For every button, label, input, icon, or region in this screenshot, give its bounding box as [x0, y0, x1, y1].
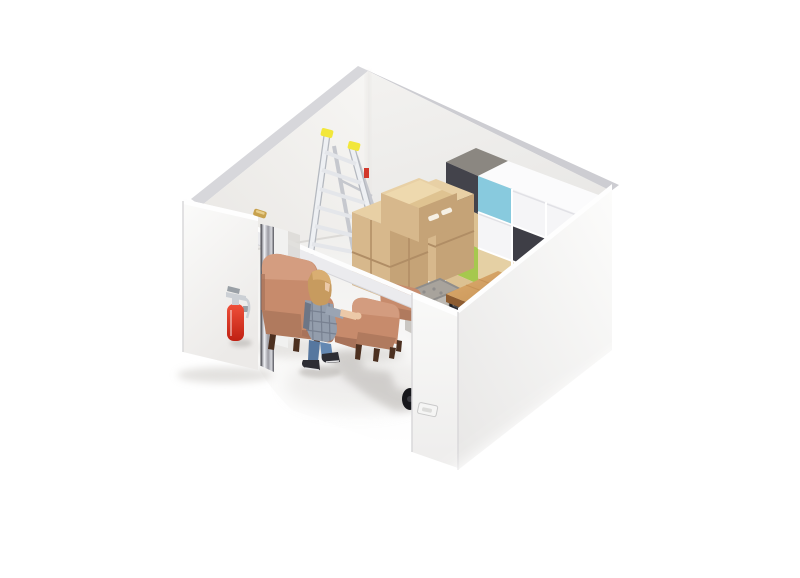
storage-unit-render	[0, 0, 800, 578]
person-left-leg	[308, 340, 320, 362]
wall-bottom-shadow	[177, 367, 273, 383]
ladder-warning-sticker	[364, 168, 369, 178]
extinguisher-body	[227, 304, 244, 341]
person-shoe-sole	[326, 361, 339, 362]
cage-speckle	[432, 287, 435, 290]
render-canvas	[0, 0, 800, 578]
front-right-wall-panel	[412, 293, 458, 468]
person-hand	[355, 313, 362, 320]
cage-speckle	[439, 291, 442, 294]
armchair-leg	[396, 340, 402, 352]
armchair-leg	[293, 338, 300, 352]
cage-speckle	[422, 290, 425, 293]
